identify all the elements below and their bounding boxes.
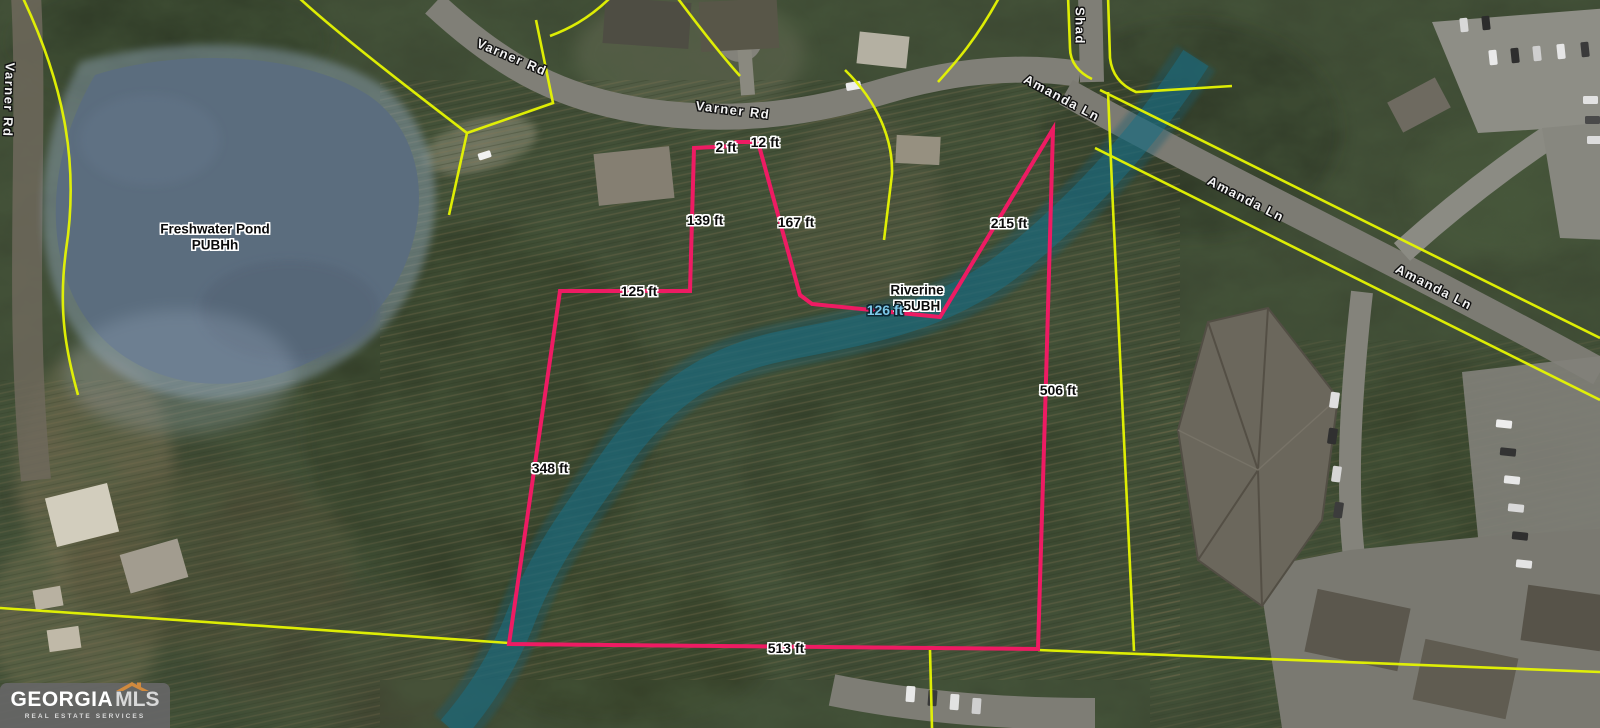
road-label-amanda-upper: Amanda Ln <box>1022 72 1103 123</box>
georgia-mls-logo: GEORGIA MLS REAL ESTATE SERVICES <box>0 683 170 728</box>
road-label-amanda-lower: Amanda Ln <box>1393 262 1474 312</box>
stream-name-label: Riverine <box>890 283 943 297</box>
road-label-varner-left: Varner Rd <box>1 62 17 137</box>
pond-name-label: Freshwater Pond <box>160 222 270 236</box>
pond-code-label: PUBHh <box>192 238 239 252</box>
measurement-125ft: 125 ft <box>621 284 658 298</box>
logo-brand-row: GEORGIA MLS <box>10 689 159 710</box>
logo-brand-primary: GEORGIA <box>10 689 113 710</box>
logo-tagline: REAL ESTATE SERVICES <box>25 713 146 720</box>
measurement-2ft: 2 ft <box>716 140 737 154</box>
road-label-amanda-middle: Amanda Ln <box>1205 174 1286 224</box>
map-canvas[interactable]: Varner Rd Varner Rd Varner Rd Shad Amand… <box>0 0 1600 728</box>
logo-brand-secondary: MLS <box>115 689 159 710</box>
measurement-12ft: 12 ft <box>751 135 780 149</box>
map-labels: Varner Rd Varner Rd Varner Rd Shad Amand… <box>0 0 1600 728</box>
stream-code-label: R5UBH <box>894 299 941 313</box>
road-label-varner-upper: Varner Rd <box>475 36 549 77</box>
measurement-215ft: 215 ft <box>991 216 1028 230</box>
roof-icon <box>116 682 158 691</box>
measurement-167ft: 167 ft <box>778 215 815 229</box>
measurement-139ft: 139 ft <box>687 213 724 227</box>
measurement-348ft: 348 ft <box>532 461 569 475</box>
measurement-506ft: 506 ft <box>1040 383 1077 397</box>
measurement-513ft: 513 ft <box>768 641 805 655</box>
road-label-shady: Shad <box>1074 7 1087 45</box>
stream-width-label: 126 ft <box>867 303 904 317</box>
road-label-varner-lower: Varner Rd <box>695 99 771 121</box>
